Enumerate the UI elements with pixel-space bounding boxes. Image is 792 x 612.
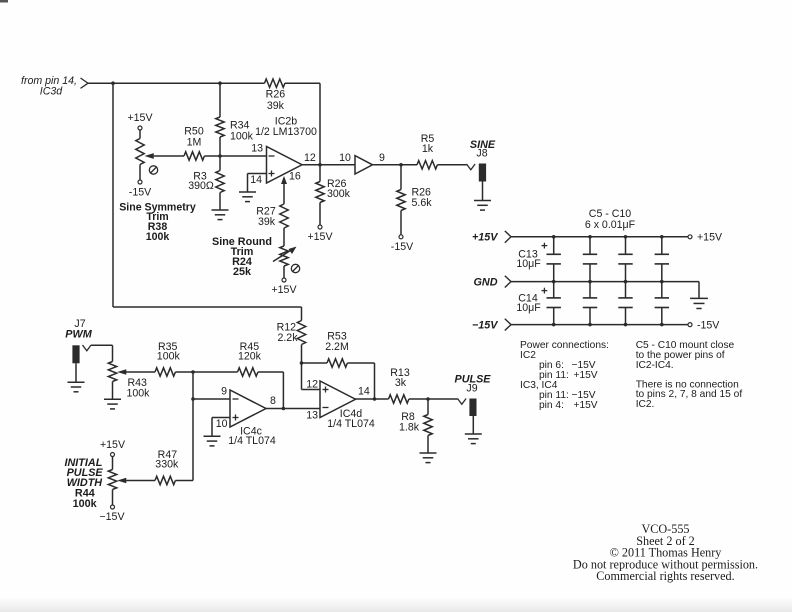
svg-text:1.8k: 1.8k xyxy=(399,422,420,434)
svg-text:Commercial rights reserved.: Commercial rights reserved. xyxy=(596,569,734,583)
svg-text:16: 16 xyxy=(289,171,301,183)
svg-text:100k: 100k xyxy=(73,498,98,510)
svg-text:6 x 0.01μF: 6 x 0.01μF xyxy=(585,219,636,231)
svg-text:25k: 25k xyxy=(233,266,252,278)
svg-text:IC2.: IC2. xyxy=(636,399,655,410)
svg-text:+15V: +15V xyxy=(574,370,598,381)
svg-text:+15V: +15V xyxy=(472,232,498,244)
svg-text:8: 8 xyxy=(270,395,276,407)
svg-text:-15V: -15V xyxy=(129,187,152,199)
svg-text:330k: 330k xyxy=(155,459,179,471)
svg-text:10μF: 10μF xyxy=(516,258,541,270)
svg-text:1/4 TL074: 1/4 TL074 xyxy=(327,418,375,430)
svg-text:IC3d: IC3d xyxy=(40,86,63,98)
svg-text:300k: 300k xyxy=(327,188,351,200)
svg-text:100k: 100k xyxy=(127,388,151,400)
svg-text:9: 9 xyxy=(379,152,385,164)
svg-text:+15V: +15V xyxy=(697,232,723,244)
svg-text:J8: J8 xyxy=(476,147,487,159)
svg-text:10: 10 xyxy=(339,152,351,164)
svg-text:390Ω: 390Ω xyxy=(188,180,214,192)
svg-text:2.2M: 2.2M xyxy=(325,341,349,353)
svg-text:14: 14 xyxy=(250,174,262,186)
svg-text:10μF: 10μF xyxy=(516,302,541,314)
svg-text:J9: J9 xyxy=(466,383,477,395)
svg-text:120k: 120k xyxy=(238,350,262,362)
svg-text:GND: GND xyxy=(474,276,498,288)
svg-text:+15V: +15V xyxy=(100,439,126,451)
svg-text:2.2k: 2.2k xyxy=(277,332,298,344)
svg-text:+15V: +15V xyxy=(127,112,153,124)
svg-text:R26: R26 xyxy=(266,89,286,101)
svg-text:PWM: PWM xyxy=(65,329,92,341)
svg-text:1M: 1M xyxy=(187,137,202,149)
svg-text:IC2-IC4.: IC2-IC4. xyxy=(636,360,674,371)
svg-text:9: 9 xyxy=(221,386,227,398)
svg-text:39k: 39k xyxy=(258,216,276,228)
svg-text:100k: 100k xyxy=(230,131,254,143)
svg-text:39k: 39k xyxy=(267,100,285,112)
svg-text:3k: 3k xyxy=(395,377,407,389)
svg-text:1k: 1k xyxy=(422,143,434,155)
svg-text:10: 10 xyxy=(216,418,228,430)
svg-text:-15V: -15V xyxy=(697,319,720,331)
svg-text:−15V: −15V xyxy=(99,511,125,523)
svg-text:12: 12 xyxy=(306,379,318,391)
svg-text:1/2 LM13700: 1/2 LM13700 xyxy=(255,126,317,138)
svg-text:+15V: +15V xyxy=(574,400,598,411)
svg-text:+15V: +15V xyxy=(307,231,333,243)
svg-text:-15V: -15V xyxy=(391,241,414,253)
svg-text:13: 13 xyxy=(306,410,318,422)
svg-text:13: 13 xyxy=(251,143,263,155)
svg-text:100k: 100k xyxy=(157,350,181,362)
svg-text:+15V: +15V xyxy=(271,284,297,296)
svg-text:100k: 100k xyxy=(146,231,170,243)
svg-text:14: 14 xyxy=(358,386,370,398)
svg-text:pin 4:: pin 4: xyxy=(539,400,564,411)
svg-text:−15V: −15V xyxy=(472,319,498,331)
svg-text:1/4 TL074: 1/4 TL074 xyxy=(228,435,276,447)
svg-text:12: 12 xyxy=(304,152,316,164)
svg-text:IC2: IC2 xyxy=(520,350,536,361)
svg-text:5.6k: 5.6k xyxy=(412,197,433,209)
